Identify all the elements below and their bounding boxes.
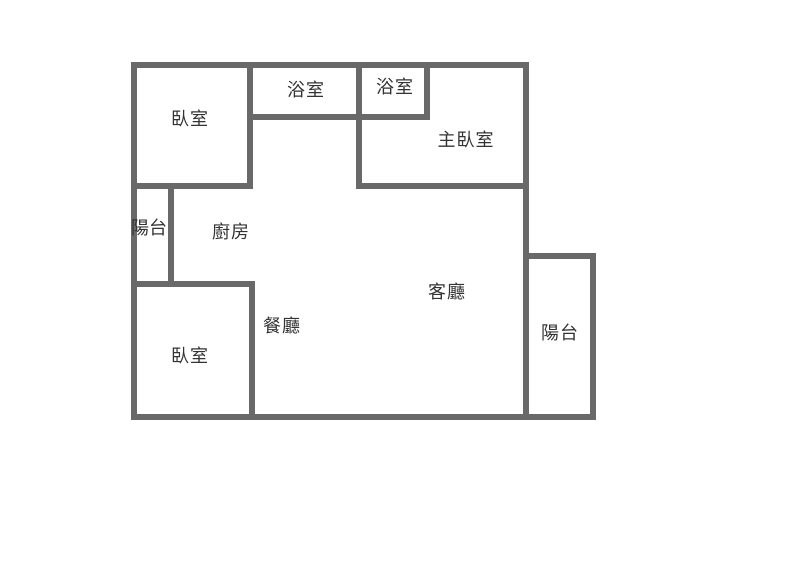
wall-main-right — [523, 62, 529, 420]
wall-bedroom2-right — [249, 281, 255, 420]
room-label-living-room: 客廳 — [428, 284, 466, 302]
room-label-master-bedroom: 主臥室 — [438, 132, 495, 150]
wall-outer-left — [131, 62, 137, 420]
wall-bathroom2-right — [424, 62, 430, 120]
wall-master-bottom — [356, 183, 523, 189]
wall-bedroom1-right — [247, 62, 253, 189]
room-label-bathroom-1: 浴室 — [287, 82, 325, 100]
wall-kitchen-divider — [168, 189, 174, 281]
wall-balcony-right-top — [523, 253, 596, 259]
room-label-balcony-left: 陽台 — [131, 220, 167, 238]
wall-outer-top — [131, 62, 529, 68]
room-label-bedroom-bottom-left: 臥室 — [171, 348, 209, 366]
wall-balcony-right-side — [590, 253, 596, 420]
wall-bathroom-divider — [356, 62, 362, 188]
room-label-bathroom-2: 浴室 — [376, 79, 414, 97]
wall-outer-bottom — [131, 414, 596, 420]
room-label-bedroom-top-left: 臥室 — [171, 111, 209, 129]
wall-bedroom1-bottom — [131, 183, 253, 189]
wall-bedroom2-top — [131, 281, 255, 287]
floor-plan: 臥室 浴室 浴室 主臥室 陽台 廚房 餐廳 客廳 臥室 陽台 — [0, 0, 797, 575]
room-label-dining-room: 餐廳 — [263, 318, 301, 336]
room-label-kitchen: 廚房 — [212, 224, 250, 242]
wall-bathrooms-bottom — [247, 114, 430, 120]
room-label-balcony-right: 陽台 — [541, 325, 579, 343]
